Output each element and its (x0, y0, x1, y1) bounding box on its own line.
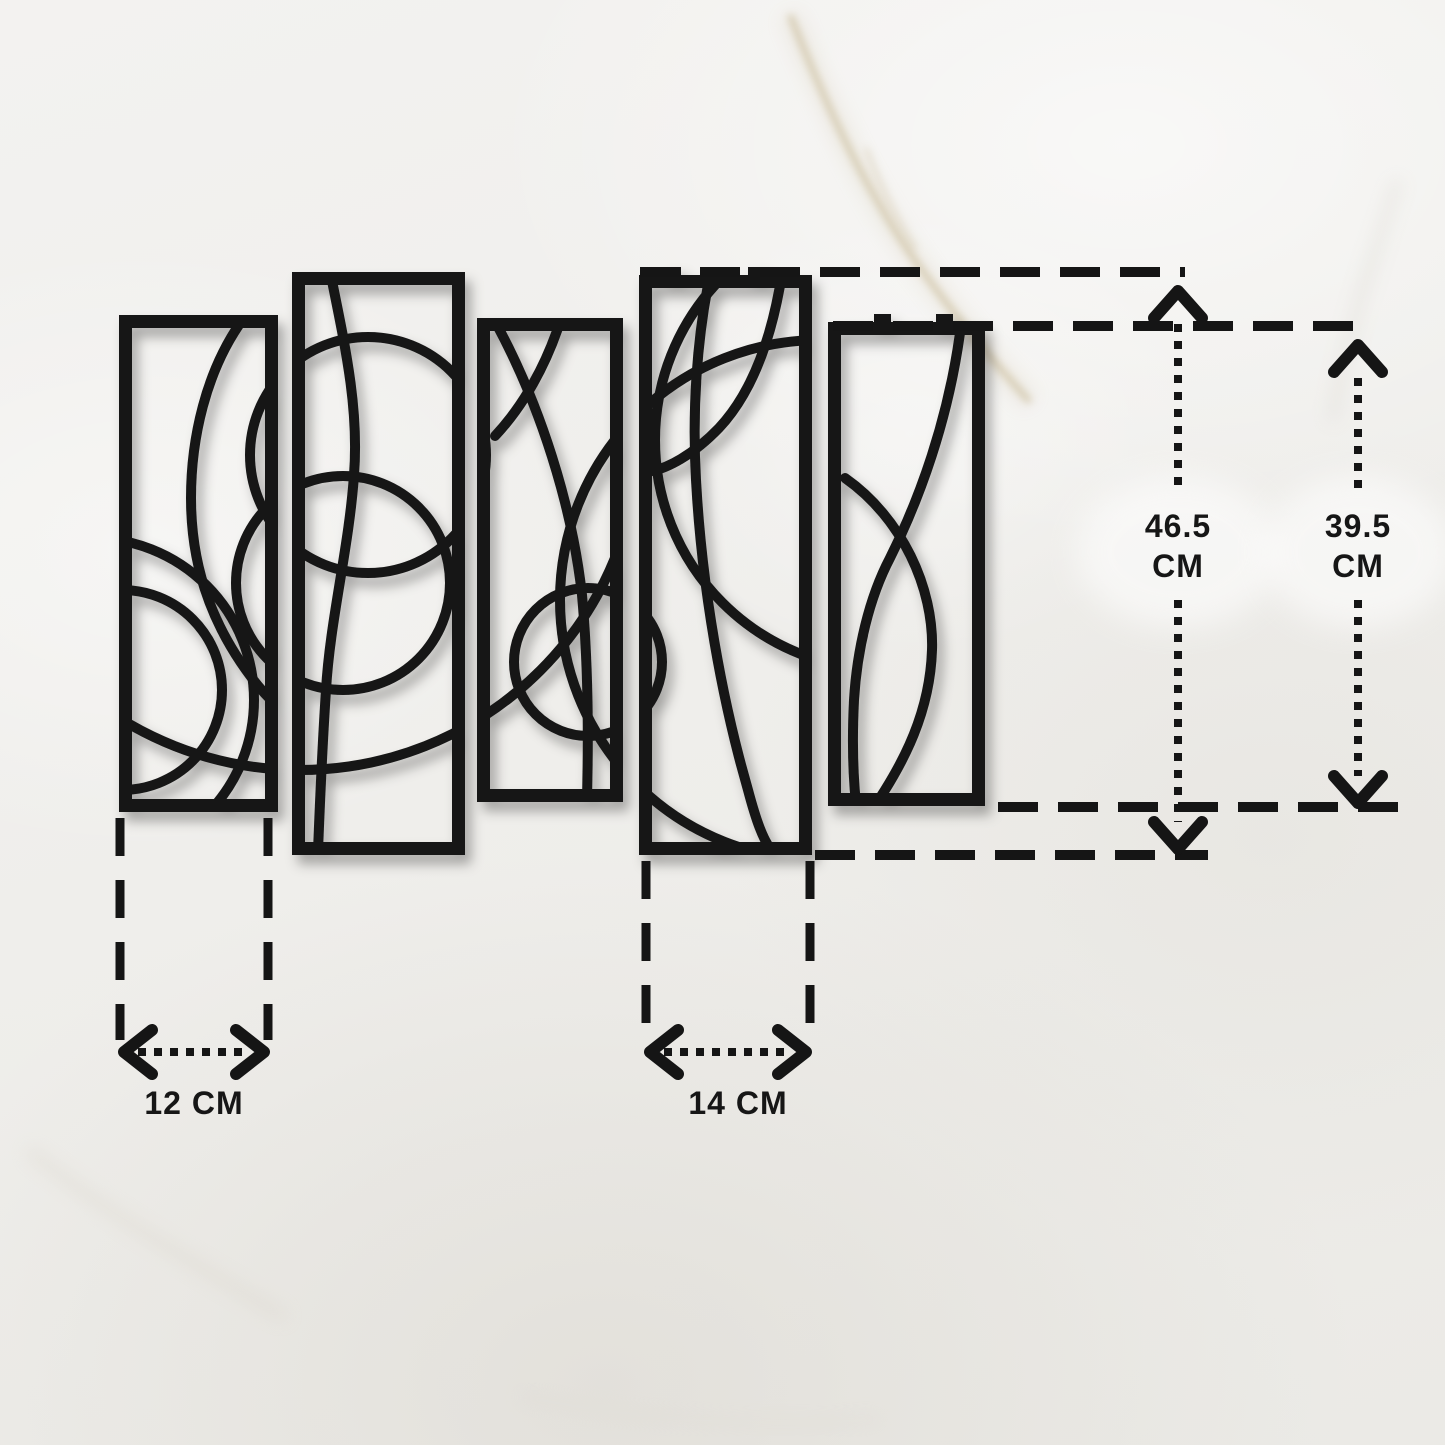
dim-arrow-down-large (1154, 822, 1202, 849)
dim-arrow-down-small (1334, 776, 1382, 803)
dim-label-large-width: 14 CM (688, 1085, 787, 1121)
marble-vein-bottom-left (28, 1150, 286, 1318)
dim-arrow-up-large (1154, 291, 1202, 318)
panel-5-hanger-tab-right (936, 314, 953, 324)
art-sweep-panel5 (853, 333, 960, 804)
panel-5-hanger-tab-left (874, 314, 891, 324)
marble-vein-gray-right (1332, 180, 1398, 422)
marble-vein-tan-halo (790, 15, 1030, 402)
dim-arrow-up-small (1334, 345, 1382, 372)
marble-veins (28, 15, 1398, 1423)
art-sweep-panel1 (191, 322, 295, 720)
scene-svg: 46.5 CM 39.5 CM 12 CM 14 CM (0, 0, 1445, 1445)
dim-label-large-height-unit: CM (1152, 548, 1204, 584)
product-image: 46.5 CM 39.5 CM 12 CM 14 CM (0, 0, 1445, 1445)
art-diagonal-panel3 (497, 325, 588, 798)
marble-vein-tan (790, 15, 1030, 402)
wall-art-set (0, 90, 1115, 862)
dim-label-small-height-unit: CM (1332, 548, 1384, 584)
art-circle-big-right (560, 340, 1080, 860)
dim-label-large-height-value: 46.5 (1145, 508, 1211, 544)
marble-vein-bottom-mid (520, 1396, 882, 1423)
dim-label-small-width: 12 CM (144, 1085, 243, 1121)
art-curve-panel4-top (652, 280, 781, 471)
art-circle-upper (250, 337, 486, 573)
dim-label-small-height-value: 39.5 (1325, 508, 1391, 544)
dimension-annotations: 46.5 CM 39.5 CM 12 CM 14 CM (120, 272, 1445, 1121)
panel-art-lines (0, 90, 1115, 862)
